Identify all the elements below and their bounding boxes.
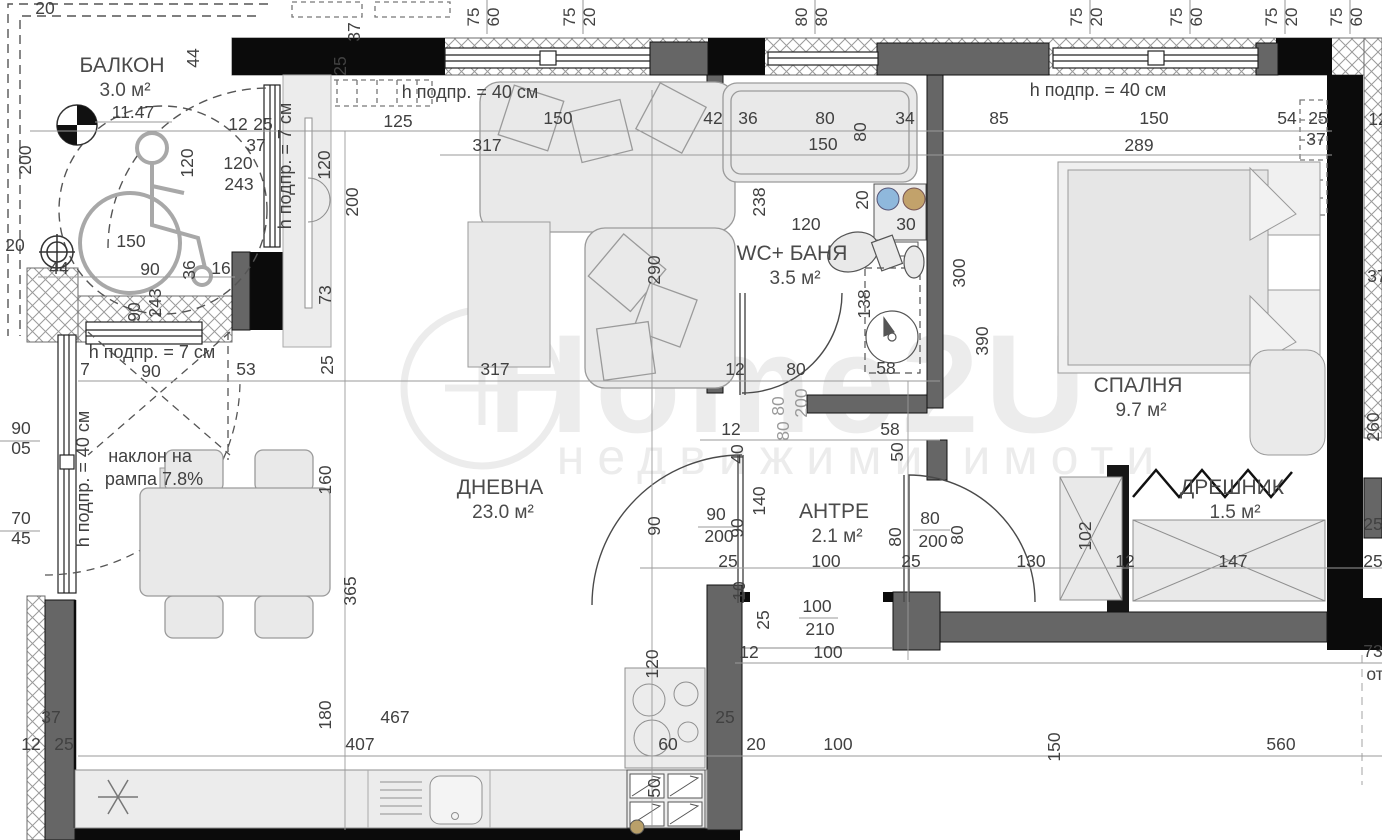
- dim-label: 160: [315, 465, 335, 494]
- dim-label: 11.47: [112, 102, 155, 122]
- dim-label: 102: [1075, 521, 1095, 550]
- dim-label: 73: [1363, 641, 1382, 661]
- dim-label: 317: [480, 359, 509, 379]
- dim-label: 150: [116, 231, 145, 251]
- dim-label: 10: [729, 581, 749, 601]
- dim-label: 200: [791, 388, 811, 417]
- dim-label: 37: [1306, 129, 1325, 149]
- dim-label: 300: [949, 258, 969, 287]
- dim-label: 60: [658, 734, 678, 754]
- dim-label: 25: [317, 355, 337, 374]
- dim-label: 80: [768, 396, 788, 416]
- dim-label: 467: [380, 707, 409, 727]
- dim-label: 12: [21, 734, 40, 754]
- dim-label: 58: [880, 419, 899, 439]
- dim-label: 200: [342, 187, 362, 216]
- dim-label: 210: [805, 619, 834, 639]
- dim-label: 50: [644, 778, 664, 798]
- dim-label: 180: [315, 700, 335, 729]
- dim-label: 58: [876, 358, 895, 378]
- window-tag-height: 20: [580, 8, 599, 27]
- dim-label: 20: [35, 0, 55, 18]
- floor-plan-drawing: Home2U недвижими имоти: [0, 0, 1382, 840]
- room-name: ДРЕШНИК: [1180, 476, 1285, 499]
- dim-label: 12: [228, 114, 247, 134]
- dim-label: 42: [703, 108, 722, 128]
- room-area: 2.1 м²: [811, 526, 862, 547]
- dim-label: 120: [314, 150, 334, 179]
- window-tag-width: 75: [1167, 8, 1186, 27]
- dim-label: 100: [802, 596, 831, 616]
- dim-label: 125: [383, 111, 412, 131]
- dim-label: 200: [918, 531, 947, 551]
- kitchen-counter: [75, 770, 707, 828]
- window-tag-height: 60: [1187, 8, 1206, 27]
- dim-label: 150: [1044, 732, 1064, 761]
- dim-label: 120: [791, 214, 820, 234]
- dim-label: 50: [887, 442, 907, 462]
- dim-label: 80: [920, 508, 940, 528]
- dim-label: 12: [1368, 109, 1382, 129]
- dim-label: 12: [725, 359, 744, 379]
- dim-label: 25: [718, 551, 737, 571]
- dim-label: 70: [11, 508, 31, 528]
- dim-label: 317: [472, 135, 501, 155]
- dim-label: 200: [15, 145, 35, 174]
- dim-label: 90: [644, 516, 664, 536]
- dim-label: 34: [895, 108, 915, 128]
- dim-label: 05: [11, 438, 30, 458]
- dim-label: 120: [177, 148, 197, 177]
- note-label: рампа 7.8%: [105, 469, 203, 489]
- window-tag-width: 75: [464, 8, 483, 27]
- survey-point-icon: [57, 105, 97, 145]
- dim-label: 25: [330, 56, 350, 75]
- dim-label: 90: [727, 518, 747, 538]
- dim-label: 80: [885, 527, 905, 547]
- window-tag-height: 20: [1087, 8, 1106, 27]
- dim-label: 243: [224, 174, 253, 194]
- dim-label: 150: [543, 108, 572, 128]
- dim-label: 73: [315, 285, 335, 304]
- window-tag-height: 20: [1282, 8, 1301, 27]
- room-name: БАЛКОН: [79, 54, 164, 77]
- window-tags: 7560752080807520756075207560: [464, 0, 1366, 34]
- dim-label: 147: [1218, 551, 1247, 571]
- window-tag-width: 75: [1262, 8, 1281, 27]
- dim-label: 138: [854, 289, 874, 318]
- dim-label: 90: [141, 361, 161, 381]
- dim-label: 150: [1139, 108, 1168, 128]
- dim-label: 25: [54, 734, 73, 754]
- note-label: h подпр. = 7 см: [275, 103, 295, 230]
- room-area: 9.7 м²: [1115, 400, 1166, 421]
- dim-label: 290: [644, 255, 664, 284]
- dim-label: 25: [715, 707, 734, 727]
- note-label: наклон на: [108, 446, 193, 466]
- dim-label: 12: [739, 642, 758, 662]
- dim-label: 53: [236, 359, 255, 379]
- dim-label: 30: [896, 214, 916, 234]
- dim-label: 80: [815, 108, 835, 128]
- window-tag-width: 75: [1327, 8, 1346, 27]
- dim-label: 36: [738, 108, 757, 128]
- dim-label: 243: [145, 288, 165, 317]
- note-label: h подпр. = 7 см: [89, 342, 216, 362]
- dim-label: 150: [808, 134, 837, 154]
- room-area: 23.0 м²: [472, 502, 534, 523]
- dim-label: 80: [786, 359, 806, 379]
- dim-label: 100: [813, 642, 842, 662]
- dim-label: 390: [972, 326, 992, 355]
- dim-label: 12: [721, 419, 740, 439]
- dim-label: 7: [80, 359, 90, 379]
- window-tag-width: 75: [1067, 8, 1086, 27]
- dim-label: 54: [1277, 108, 1297, 128]
- bathtub: [723, 83, 917, 182]
- dim-label: 407: [345, 734, 374, 754]
- note-label: h подпр. = 40 см: [1030, 80, 1167, 100]
- window-tag-width: 75: [560, 8, 579, 27]
- dim-label: 25: [253, 114, 272, 134]
- dim-label: 25: [1363, 514, 1382, 534]
- room-name: ДНЕВНА: [457, 476, 544, 499]
- dim-label: 20: [746, 734, 766, 754]
- dim-label: 25: [753, 610, 773, 629]
- room-area: 3.0 м²: [99, 80, 150, 101]
- window-tag-width: 80: [792, 8, 811, 27]
- room-name: АНТРЕ: [799, 500, 869, 523]
- dim-label: 16: [211, 258, 230, 278]
- dim-label: 560: [1266, 734, 1295, 754]
- dim-label: 85: [989, 108, 1008, 128]
- dim-label: 12: [1115, 551, 1134, 571]
- room-area: 1.5 м²: [1209, 502, 1260, 523]
- dim-label: от: [1366, 664, 1382, 684]
- dim-label: 90: [706, 504, 726, 524]
- dim-label: 120: [642, 649, 662, 678]
- window-tag-height: 80: [812, 8, 831, 27]
- dim-label: 130: [1016, 551, 1045, 571]
- dim-label: 260: [1363, 412, 1382, 441]
- dim-label: 100: [823, 734, 852, 754]
- dim-label: 80: [947, 525, 967, 545]
- window-tag-height: 60: [484, 8, 503, 27]
- dim-label: 90: [11, 418, 31, 438]
- room-name: WC+ БАНЯ: [737, 242, 848, 265]
- dim-label: 100: [811, 551, 840, 571]
- note-label: h подпр. = 40 см: [402, 82, 539, 102]
- dim-label: 25: [1363, 551, 1382, 571]
- dim-label: 90: [140, 259, 160, 279]
- dim-label: 140: [749, 486, 769, 515]
- dim-label: 289: [1124, 135, 1153, 155]
- dim-label: 238: [749, 187, 769, 216]
- dim-label: 25: [1308, 108, 1327, 128]
- dim-label: 20: [852, 190, 872, 210]
- dim-label: 37: [41, 707, 60, 727]
- dim-label: 37: [246, 135, 265, 155]
- dim-label: 45: [11, 528, 30, 548]
- dim-label: 365: [340, 576, 360, 605]
- window-tag-height: 60: [1347, 8, 1366, 27]
- room-area: 3.5 м²: [769, 268, 820, 289]
- dim-label: 44: [183, 48, 203, 68]
- dim-label: 90: [124, 302, 144, 322]
- dim-label: 120: [223, 153, 252, 173]
- coffee-table: [468, 222, 550, 367]
- dim-label: 20: [5, 235, 25, 255]
- dim-label: 40: [727, 444, 747, 464]
- dim-label: 37: [344, 22, 364, 41]
- dim-label: 37: [1367, 266, 1382, 286]
- floor-plan-page: Home2U недвижими имоти: [0, 0, 1382, 840]
- kitchen-cabinet: [627, 770, 705, 834]
- dim-label: 80: [850, 122, 870, 142]
- dim-label: 80: [773, 421, 793, 441]
- dim-label: 25: [901, 551, 920, 571]
- bed: [1058, 162, 1325, 455]
- room-name: СПАЛНЯ: [1094, 374, 1183, 397]
- note-label: h подпр. = 40 см: [73, 411, 93, 548]
- dim-label: 36: [179, 260, 199, 279]
- dim-label: 44: [49, 258, 69, 278]
